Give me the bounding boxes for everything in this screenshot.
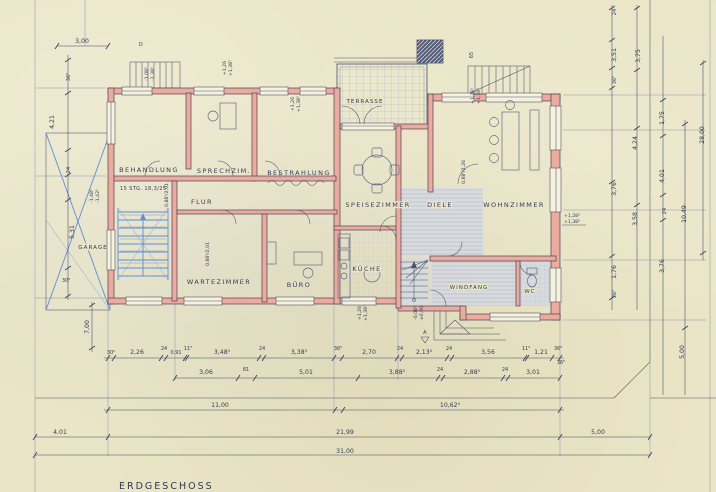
room-label-bestrahlung: BESTRAHLUNG: [267, 169, 331, 177]
level-marker: +1,38⁵: [476, 88, 482, 104]
dim-label: 2,70: [362, 349, 376, 356]
dim-label: 10,62⁵: [440, 402, 461, 409]
dim-label: 11,00: [211, 402, 229, 409]
dim-label: 3,88⁵: [389, 369, 406, 376]
dim-label: 24: [446, 346, 452, 352]
dim-label: 30⁵: [62, 278, 70, 284]
door-tag: 0,88⁵/2,01: [205, 242, 211, 266]
dim-label: 3,56: [481, 349, 495, 356]
level-marker: +1,38⁵: [228, 60, 234, 76]
dim-label: 3,06: [199, 369, 213, 376]
dim-label: 36⁵: [612, 76, 618, 84]
dim-label: 7,00: [84, 320, 91, 334]
level-marker: -1,08⁵: [144, 67, 150, 81]
dim-label: 3,48⁵: [214, 349, 231, 356]
dim-label: 0,91: [170, 350, 181, 356]
dim-label: 5,00: [679, 345, 686, 359]
door-tag: 0,88⁵/2,01: [164, 183, 170, 207]
dim-label: 3,01: [526, 369, 540, 376]
dim-label: 24: [612, 9, 618, 15]
room-label-buero: BÜRO: [287, 280, 311, 289]
floorplan-drawing: GARAGE TERRASSE: [0, 0, 716, 492]
dim-label: 3,76: [611, 182, 618, 196]
level-marker: -1,38⁵: [150, 67, 156, 81]
level-marker: +1,38⁵: [363, 305, 369, 321]
dim-label: 3,51: [611, 48, 618, 62]
garage-annex: GARAGE: [46, 133, 110, 310]
dim-label: 31,00: [336, 448, 354, 455]
chimney: [417, 40, 443, 63]
dim-label: 4,24: [632, 136, 639, 150]
sheet-title: ERDGESCHOSS: [119, 481, 214, 492]
room-label-windfang: WINDFANG: [450, 285, 489, 291]
door-tag: 0,88⁵/2,26: [461, 160, 467, 184]
dim-label: 4,21: [49, 115, 56, 129]
level-marker: +1,26: [357, 306, 363, 320]
level-marker: ±0,00: [419, 306, 425, 320]
dim-label: 4,01: [659, 169, 666, 183]
section-marker-a: A: [423, 330, 427, 336]
terrace: TERRASSE: [334, 58, 430, 128]
stair-width-label: 65: [469, 52, 475, 58]
level-marker: +1,28⁵: [564, 213, 580, 219]
dim-label: 36⁵: [612, 290, 618, 298]
dim-label: 24: [66, 167, 72, 173]
room-label-kueche: KÜCHE: [352, 264, 381, 273]
dim-label: 1,75: [659, 111, 666, 125]
dim-label: 28,00: [699, 126, 706, 144]
dim-label: 24: [397, 346, 403, 352]
room-label-wc: WC: [524, 289, 535, 295]
dim-label: 2,13⁵: [416, 349, 433, 356]
dim-label: 3,75: [635, 49, 642, 63]
section-marker-d: D: [139, 42, 143, 48]
dim-label: 5,31: [69, 225, 76, 239]
dim-label: 5,01: [299, 369, 313, 376]
room-label-terrasse: TERRASSE: [346, 99, 384, 105]
dim-label: 36⁵: [557, 360, 565, 366]
dim-label: 10,49: [681, 205, 688, 223]
level-marker: -0,08⁵: [413, 306, 419, 320]
dim-label: 4,01: [53, 429, 67, 436]
room-label-wartezimmer: WARTEZIMMER: [187, 278, 251, 286]
dim-label: 81: [243, 367, 249, 373]
dim-label: 5,00: [591, 429, 605, 436]
dim-label: 36⁵: [554, 346, 562, 352]
level-marker: +1,38⁵: [296, 96, 302, 112]
dim-label: 3,00: [75, 38, 89, 45]
dim-label: 21,99: [336, 429, 354, 436]
dim-label: 30⁵: [107, 350, 115, 356]
dim-label: 36⁵: [66, 73, 72, 81]
room-label-sprechzimmer: SPRECHZIM.: [197, 167, 251, 175]
dim-label: 2,88⁵: [464, 369, 481, 376]
room-label-behandlung: BEHANDLUNG: [119, 166, 179, 174]
level-marker: +1,28⁵: [470, 88, 476, 104]
room-label-diele: DIELE: [427, 201, 453, 209]
dim-label: 24: [662, 208, 668, 214]
dim-label: 24: [259, 346, 265, 352]
dim-label: 11⁵: [522, 346, 530, 352]
room-label-speisezimmer: SPEISEZIMMER: [345, 201, 410, 209]
room-label-garage: GARAGE: [78, 245, 107, 251]
blue-stair: [118, 208, 168, 280]
dim-label: 1,76: [611, 265, 618, 279]
room-label-wohnzimmer: WOHNZIMMER: [483, 201, 545, 209]
dim-label: 24: [502, 367, 508, 373]
dim-label: 3,76: [659, 259, 666, 273]
level-marker: +1,38⁵: [564, 219, 580, 225]
dim-label: 3,38⁵: [291, 349, 308, 356]
dim-label: 2,26: [130, 349, 144, 356]
level-marker: -1,48⁵: [89, 189, 95, 203]
dim-label: 1,21: [534, 349, 548, 356]
level-marker: +1,26: [290, 97, 296, 111]
dim-label: 24: [161, 346, 167, 352]
level-marker: -1,42⁵: [95, 189, 101, 203]
level-marker: +1,26: [222, 61, 228, 75]
dim-label: 36⁵: [334, 346, 342, 352]
room-label-flur: FLUR: [191, 198, 213, 206]
dim-label: 24: [437, 367, 443, 373]
dim-label: 3,58: [632, 212, 639, 226]
blueprint-sheet: GARAGE TERRASSE: [0, 0, 716, 492]
dim-label: 11⁵: [184, 346, 192, 352]
stair-note: 15 STG. 18,3/25: [120, 186, 166, 192]
